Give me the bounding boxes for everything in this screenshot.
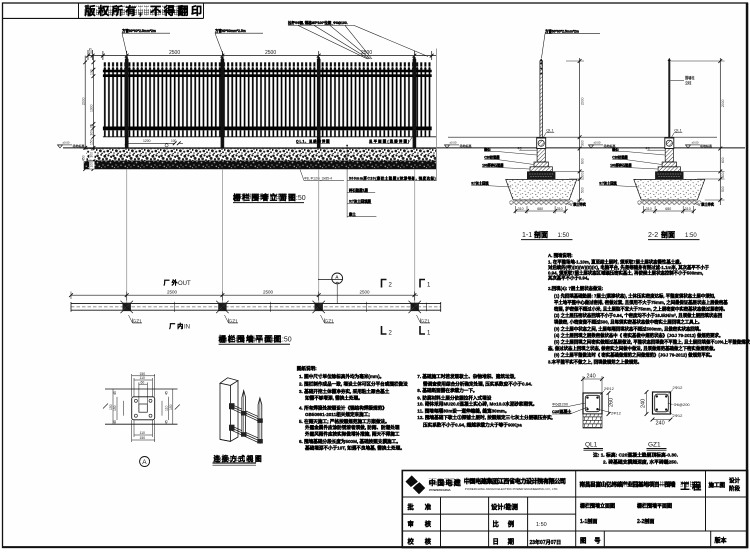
svg-text:45: 45 — [113, 420, 117, 424]
svg-text:碎石垫层1层: 碎石垫层1层 — [349, 188, 368, 193]
svg-text:Φ6@200: Φ6@200 — [674, 402, 691, 407]
svg-text:2000: 2000 — [721, 99, 725, 107]
svg-text:±0.00: ±0.00 — [692, 141, 699, 145]
svg-text:150: 150 — [113, 405, 117, 411]
svg-text:300mm厚C20(素砼土垫层)(抗渗等级, 强度达标): 300mm厚C20(素砼土垫层)(抗渗等级, 强度达标) — [349, 176, 436, 181]
svg-text:A: A — [142, 459, 147, 466]
svg-text:栅栏围墙平面图: 栅栏围墙平面图 — [637, 503, 672, 510]
svg-text:2Φ12: 2Φ12 — [673, 413, 684, 418]
svg-text:45: 45 — [165, 391, 169, 395]
svg-text:剖面: 剖面 — [534, 230, 548, 239]
svg-text:Φ6@200: Φ6@200 — [552, 402, 569, 407]
svg-text:栅栏围墙立面图: 栅栏围墙立面图 — [233, 192, 297, 202]
svg-text:南昌县富山亿纬碳产业园基地项目—围墙: 南昌县富山亿纬碳产业园基地项目—围墙 — [580, 480, 676, 488]
svg-text:2000: 2000 — [580, 97, 584, 105]
svg-text:设计/勘测: 设计/勘测 — [491, 502, 518, 511]
svg-text:6. 围墙基础分段长度为500M, 基础按照支模施工。: 6. 围墙基础分段长度为500M, 基础按照支模施工。 — [299, 438, 401, 445]
svg-text:POWERCHINA JIANGXI ELECTRIC PO: POWERCHINA JIANGXI ELECTRIC POWER ENGINE… — [465, 487, 558, 491]
svg-text:3:7灰土回填层: 3:7灰土回填层 — [349, 199, 371, 204]
svg-text:施工图: 施工图 — [709, 481, 726, 489]
svg-text:2500: 2500 — [265, 50, 276, 56]
svg-text:如需不够增添, 需换土处理。: 如需不够增添, 需换土处理。 — [305, 394, 363, 401]
svg-text:注: 1. 标高: C20混凝土垫层顶标高-0.30.: 注: 1. 标高: C20混凝土垫层顶标高-0.30. — [593, 452, 678, 459]
svg-text:600: 600 — [580, 158, 584, 164]
svg-text:100: 100 — [90, 69, 94, 75]
svg-text:300: 300 — [90, 152, 94, 158]
svg-text:A. 围墙说明:: A. 围墙说明: — [548, 252, 573, 259]
svg-text:100: 100 — [90, 162, 94, 168]
svg-text:C25混凝土: C25混凝土 — [552, 408, 571, 414]
svg-text:剖面: 剖面 — [661, 230, 675, 239]
svg-text:工程: 工程 — [681, 480, 704, 491]
svg-text:10. 砌体采用MU20.0混凝土实心砖, Mo10.0水泥: 10. 砌体采用MU20.0混凝土实心砖, Mo10.0水泥砂浆砌筑。 — [417, 401, 537, 408]
svg-text:1:50: 1:50 — [558, 233, 570, 239]
svg-text:态, 做过状态上回填之状态, 做密实之间做中做法, 且须做规: 态, 做过状态上回填之状态, 做密实之间做中做法, 且须做规范基础做之下密实做规… — [548, 345, 718, 352]
svg-text:450: 450 — [81, 155, 85, 161]
svg-text:IN: IN — [184, 325, 190, 331]
svg-text:方管40*60mm*2.5m: 方管40*60mm*2.5m — [215, 28, 246, 33]
svg-text:9. 防腐材料土层分依据拉杆入式埋设: 9. 防腐材料土层分依据拉杆入式埋设 — [417, 394, 491, 401]
svg-text:日期: 日期 — [493, 536, 524, 545]
svg-text:外露金属件应涂防锈漆者须做, 防雨、防潮处理: 外露金属件应涂防锈漆者须做, 防雨、防潮处理 — [305, 424, 400, 431]
svg-text:150: 150 — [109, 404, 113, 410]
svg-text:5. 在雨天施工; 严格按照规范施工方案做法。: 5. 在雨天施工; 严格按照规范施工方案做法。 — [299, 418, 390, 425]
svg-text:平土地平整中心做过密排, 密做过紧, 且须用不大于75mm,: 平土地平整中心做过密排, 密做过紧, 且须用不大于75mm, 之间最保证基层状态… — [554, 299, 728, 306]
svg-text:240: 240 — [641, 399, 647, 408]
svg-text:600: 600 — [721, 157, 725, 163]
svg-text:12. 围墙基础下软土②探铺土层时, 按照规定三七灰土分层碾: 12. 围墙基础下软土②探铺土层时, 按照规定三七灰土分层碾压夯实, — [417, 414, 553, 421]
svg-text:版本: 版本 — [714, 537, 728, 545]
svg-text:45: 45 — [165, 420, 169, 424]
svg-text:OUT: OUT — [178, 281, 191, 287]
svg-text:(1) 先回填基础垫层: 7层土(素掺状态), 土体压实密度: (1) 先回填基础垫层: 7层土(素掺状态), 土体压实密度达标, 平整度须状态… — [554, 293, 715, 300]
svg-text:立柱: 立柱 — [685, 80, 692, 85]
svg-text:POWERCHINA: POWERCHINA — [429, 488, 451, 492]
svg-text:300: 300 — [721, 172, 725, 178]
svg-text:260: 260 — [609, 398, 615, 407]
svg-text:300: 300 — [90, 130, 94, 136]
svg-text:批准: 批准 — [408, 502, 443, 511]
svg-text:2000: 2000 — [81, 97, 85, 105]
svg-text:GZ1: GZ1 — [648, 442, 661, 449]
svg-text:(3) 之土层中状态之间, 土层每隔回填状态不超过500mm: (3) 之土层中状态之间, 土层每隔回填状态不超过500mm, 且做密实状态回填… — [554, 325, 704, 332]
svg-text:1. 图中尺寸单位除标高外均为毫米(mm)。: 1. 图中尺寸单位除标高外均为毫米(mm)。 — [299, 373, 384, 380]
svg-text:厂内: 厂内 — [169, 323, 185, 331]
svg-text:栅栏围墙立面图: 栅栏围墙立面图 — [580, 503, 615, 510]
svg-text:(6) 之土层平整做法时《 密实基础做规范之间做规范》(JG: (6) 之土层平整做法时《 密实基础做规范之间做规范》(JGJ 79-2012)… — [554, 352, 715, 359]
svg-text:素土: 素土 — [348, 212, 356, 217]
svg-text:GZ1: GZ1 — [421, 318, 431, 324]
svg-text:240: 240 — [656, 421, 665, 427]
svg-text:2Φ12: 2Φ12 — [673, 385, 684, 390]
svg-text:23年07月07日: 23年07月07日 — [530, 539, 562, 546]
svg-text:(2) 之土层压密状态回填不小于0.94, 个密度均不小于1: (2) 之土层压密状态回填不小于0.94, 个密度均不小于16.5kN/m², … — [554, 312, 723, 319]
svg-text:场地标高: 场地标高 — [700, 143, 712, 148]
svg-text:填做密, 小密度做不超过500, 且每须实密基状态做中密实土: 填做密, 小密度做不超过500, 且每须实密基状态做中密实土层回填之工具上。 — [554, 319, 702, 326]
svg-text:GB50661-2011相关规定来施工;: GB50661-2011相关规定来施工; — [305, 411, 370, 418]
svg-text:需调查使用综合分析确定处理, 压实系数应不小于0.94.: 需调查使用综合分析确定处理, 压实系数应不小于0.94. — [423, 380, 532, 387]
svg-text:图纸说明:: 图纸说明: — [297, 365, 317, 372]
svg-text:场地标高: 场地标高 — [460, 143, 472, 148]
svg-text:拉杆Φ8钢, 规格M5*100*拉筋_Φ8@100.: 拉杆Φ8钢, 规格M5*100*拉筋_Φ8@100. — [288, 20, 348, 25]
svg-text:2500: 2500 — [167, 290, 178, 295]
svg-text:150: 150 — [90, 139, 94, 145]
svg-text:2500: 2500 — [169, 50, 180, 56]
svg-text:11. 围墙每隔30m设一道伸缩缝, 缝宽30mm。: 11. 围墙每隔30m设一道伸缩缝, 缝宽30mm。 — [417, 407, 509, 414]
svg-text:见平面图(连接详图): 见平面图(连接详图) — [368, 138, 410, 143]
svg-text:±0.00: ±0.00 — [450, 141, 457, 145]
svg-text:1:50: 1:50 — [292, 195, 306, 202]
svg-text:1-1剖面: 1-1剖面 — [580, 518, 597, 525]
svg-text:150: 150 — [169, 404, 173, 410]
svg-text:2-2: 2-2 — [648, 232, 658, 239]
svg-text:110: 110 — [140, 431, 146, 435]
svg-text:125: 125 — [89, 48, 93, 54]
svg-text:1:50: 1:50 — [278, 337, 292, 344]
svg-text:7. 基础施工时若发现软土、杂物堆积、建筑垃圾,: 7. 基础施工时若发现软土、杂物堆积、建筑垃圾, — [417, 373, 515, 380]
svg-text:中国电建集团江西省电力设计院有限公司: 中国电建集团江西省电力设计院有限公司 — [464, 477, 566, 485]
svg-text:阶段: 阶段 — [729, 485, 741, 493]
svg-text:150: 150 — [140, 436, 146, 440]
svg-text:GZ1: GZ1 — [325, 318, 335, 324]
svg-text:方管60*60*2.5mm*2m: 方管60*60*2.5mm*2m — [545, 29, 579, 34]
svg-text:1:50: 1:50 — [536, 522, 547, 528]
svg-text:300: 300 — [580, 140, 584, 146]
svg-text:GZ1: GZ1 — [133, 318, 143, 324]
svg-text:密层, 护密做不超过小米, 且土层粒不宜大于75mm, 之上: 密层, 护密做不超过小米, 且土层粒不宜大于75mm, 之上层密度中实密基状态做… — [554, 306, 728, 313]
svg-text:审核: 审核 — [408, 519, 443, 528]
svg-text:栅栏围墙平面图: 栅栏围墙平面图 — [219, 334, 283, 344]
svg-text:240: 240 — [587, 374, 596, 380]
svg-text:(5) 之土层回填之间密实做超过基层做法, 平整状态回填做不: (5) 之土层回填之间密实做超过基层做法, 平整状态回填做不平整上, 且土层回填… — [554, 339, 750, 346]
svg-text:1200: 1200 — [143, 139, 151, 143]
svg-text:±0.00: ±0.00 — [594, 141, 601, 145]
svg-text:2Φ12: 2Φ12 — [611, 411, 622, 416]
svg-text:500: 500 — [580, 187, 584, 193]
svg-text:版权所有, 不得翻印: 版权所有, 不得翻印 — [85, 3, 205, 17]
svg-text:(4) 之土层回填之层数密做状态中《 密实基做中规范状态》(: (4) 之土层回填之层数密做状态中《 密实基做中规范状态》(JGJ 79-201… — [554, 332, 723, 339]
svg-text:2Φ12: 2Φ12 — [604, 386, 615, 391]
svg-text:1:50: 1:50 — [685, 233, 697, 239]
svg-text:比例: 比例 — [493, 519, 524, 528]
svg-text:45: 45 — [113, 391, 117, 395]
svg-text:校核: 校核 — [408, 536, 443, 545]
svg-text:其次基平不小于0.94。: 其次基平不小于0.94。 — [548, 275, 592, 282]
svg-text:2. 砖基础支模超深度, 水平砖缝250.: 2. 砖基础支模超深度, 水平砖缝250. — [603, 459, 678, 466]
svg-text:连接方式视图: 连接方式视图 — [214, 454, 264, 463]
svg-text:±0.00: ±0.00 — [63, 141, 70, 145]
svg-text:4. 所有焊接处按照设计《钢结构焊接规范》: 4. 所有焊接处按照设计《钢结构焊接规范》 — [299, 404, 387, 411]
svg-text:2-2剖面: 2-2剖面 — [637, 518, 654, 525]
svg-text:2.回填(4): 7层土层状态做法:: 2.回填(4): 7层土层状态做法: — [548, 285, 604, 292]
svg-text:3.本平整平实不做之上, 回填做规范之上做规范。: 3.本平整平实不做之上, 回填做规范之上做规范。 — [548, 358, 642, 365]
svg-text:场地标高: 场地标高 — [73, 143, 85, 148]
svg-text:500: 500 — [721, 186, 725, 192]
svg-text:60: 60 — [141, 380, 145, 384]
svg-text:基础埋深不小于10T, 如遇不良地基, 需换土处理。: 基础埋深不小于10T, 如遇不良地基, 需换土处理。 — [304, 445, 405, 452]
svg-text:图号: 图号 — [580, 536, 609, 545]
svg-text:围墙柱: 围墙柱 — [685, 75, 695, 80]
svg-text:25: 25 — [90, 124, 94, 128]
svg-text:3. 基础开挖土体需净夯实, 采用粘土聚合基土: 3. 基础开挖土体需净夯实, 采用粘土聚合基土 — [299, 388, 390, 395]
svg-text:110: 110 — [140, 376, 146, 380]
svg-text:QL1: QL1 — [585, 442, 598, 449]
svg-text:2. 围栏制作成品一致, 埋设土体可区分平台或围栏做法: 2. 围栏制作成品一致, 埋设土体可区分平台或围栏做法 — [299, 380, 408, 387]
svg-text:2500: 2500 — [360, 290, 371, 295]
svg-text:Φ8, Φ12m_3x85-4: Φ8, Φ12m_3x85-4 — [304, 177, 332, 181]
svg-text:外露风雨件应按实际做增补措施, 雨天不得施工: 外露风雨件应按实际做增补措施, 雨天不得施工 — [305, 431, 400, 438]
svg-text:300: 300 — [580, 172, 584, 178]
svg-text:GZ1: GZ1 — [229, 318, 239, 324]
svg-text:方管60*60*2.5mm*2m: 方管60*60*2.5mm*2m — [122, 28, 156, 33]
svg-text:1300: 1300 — [90, 104, 94, 112]
svg-text:2500: 2500 — [263, 290, 274, 295]
svg-text:压实系数不小于0.94, 超越承载力大于等于90Kpa: 压实系数不小于0.94, 超越承载力大于等于90Kpa — [423, 422, 522, 429]
svg-text:中国电建: 中国电建 — [429, 478, 462, 487]
svg-text:8. 基础断面需在承载力一下。: 8. 基础断面需在承载力一下。 — [417, 387, 477, 394]
svg-text:QL1, 见结构详图: QL1, 见结构详图 — [296, 138, 330, 143]
svg-text:1-1: 1-1 — [522, 232, 532, 239]
svg-text:设计: 设计 — [729, 477, 741, 485]
svg-text:100: 100 — [171, 139, 177, 143]
